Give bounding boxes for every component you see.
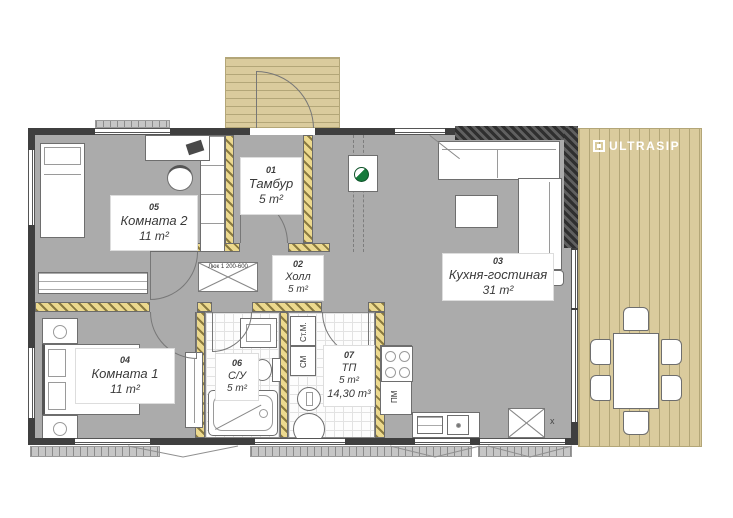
window — [28, 348, 35, 418]
window-opening-triangle — [128, 446, 238, 458]
beam-dashed-line — [353, 135, 354, 252]
room-name: С/У — [228, 370, 246, 384]
room-label-02: 02 Холл 5 m² — [272, 255, 324, 301]
ceiling-hatch: Люк 1 200-600 — [198, 262, 258, 292]
room-area: 11 m² — [139, 229, 169, 244]
room-number: 01 — [266, 165, 276, 176]
bathtub-drain — [259, 409, 268, 418]
deck-top — [225, 57, 340, 128]
window — [75, 438, 150, 445]
single-bed — [40, 143, 85, 238]
nightstand — [42, 318, 78, 344]
dining-chair — [661, 375, 682, 401]
wardrobe — [185, 352, 203, 428]
room-area: 5 m² — [259, 192, 283, 207]
room-label-05: 05 Комната 2 11 m² — [110, 195, 198, 251]
room-name: Кухня-гостиная — [449, 267, 547, 283]
coffee-table — [455, 195, 498, 228]
wardrobe-handle — [194, 359, 195, 423]
ultrasip-logo-text: ULTRASIP — [609, 139, 680, 153]
x-mark: x — [550, 416, 555, 426]
pillow — [48, 349, 66, 377]
dresser — [38, 272, 148, 294]
wall — [225, 135, 234, 251]
wall — [252, 302, 322, 312]
ultrasip-logo-icon — [593, 140, 605, 152]
kitchen-sink-unit — [417, 415, 475, 436]
room-volume: 14,30 m³ — [327, 388, 370, 402]
tap — [456, 423, 461, 428]
room-label-04: 04 Комната 1 11 m² — [75, 348, 175, 404]
dining-chair — [623, 411, 649, 435]
room-number: 06 — [232, 358, 242, 369]
nightstand — [42, 415, 78, 441]
wall — [288, 243, 330, 252]
dining-chair — [623, 307, 649, 331]
room-name: Тамбур — [249, 176, 294, 192]
room-number: 07 — [344, 350, 354, 361]
window — [395, 128, 445, 135]
pillow — [48, 382, 66, 410]
floor-plan-canvas: ULTRASIP — [0, 0, 733, 518]
sink-basin — [246, 324, 271, 342]
lamp — [53, 422, 67, 436]
dining-chair — [590, 339, 611, 365]
dryer-machine-label: СМ — [299, 351, 308, 373]
stove — [381, 346, 413, 382]
window — [415, 438, 470, 445]
room-area: 5 m² — [339, 375, 359, 388]
door-arc-room2 — [150, 252, 198, 300]
entry-door-arc — [256, 71, 314, 129]
washing-machine: Ст.М. — [290, 316, 316, 346]
room-label-06: 06 С/У 5 m² — [215, 353, 259, 401]
beam-dashed-line — [363, 135, 364, 252]
burner — [385, 351, 396, 362]
window — [95, 128, 170, 135]
toilet-tank — [272, 358, 281, 382]
room-name: ТП — [342, 362, 357, 376]
room-label-03: 03 Кухня-гостиная 31 m² — [442, 253, 554, 301]
sofa-seat-divider — [497, 150, 498, 178]
dining-chair — [661, 339, 682, 365]
lamp — [53, 325, 67, 339]
laptop — [186, 140, 205, 155]
room-name: Комната 1 — [92, 366, 159, 382]
electrical-panel — [348, 155, 378, 192]
exterior-wall-hatched — [564, 128, 578, 248]
dryer-machine: СМ — [290, 346, 316, 376]
blanket-line — [44, 174, 81, 175]
dishwasher-label: ПМ — [390, 386, 399, 408]
dining-chair — [590, 375, 611, 401]
building-outline: Ст.М. СМ ПМ — [28, 128, 578, 445]
wall — [35, 302, 150, 312]
dining-table — [613, 333, 659, 409]
sliding-door-opening — [571, 310, 578, 422]
desk — [145, 135, 210, 161]
window-opening-triangle — [488, 446, 572, 458]
wall — [368, 302, 385, 312]
room-number: 05 — [149, 202, 159, 213]
window — [28, 150, 35, 225]
room-area: 31 m² — [483, 283, 514, 298]
sofa-horizontal — [438, 141, 560, 180]
room-number: 02 — [293, 259, 303, 270]
room-name: Холл — [285, 271, 310, 285]
drainer — [417, 416, 443, 434]
window — [255, 438, 345, 445]
window — [480, 438, 565, 445]
window — [571, 250, 578, 308]
room-area: 11 m² — [110, 382, 140, 397]
room-label-01: 01 Тамбур 5 m² — [240, 157, 302, 215]
pillow — [44, 147, 81, 165]
wall — [303, 135, 313, 243]
burner — [399, 367, 410, 378]
ultrasip-logo: ULTRASIP — [593, 139, 680, 153]
room-number: 04 — [120, 355, 130, 366]
room-name: Комната 2 — [121, 213, 188, 229]
vent-box — [508, 408, 545, 438]
wall — [197, 302, 212, 312]
office-chair — [167, 165, 193, 191]
panel-indicator-icon — [354, 167, 369, 182]
burner — [385, 367, 396, 378]
pump-core — [306, 392, 313, 406]
sofa-backrest-line — [442, 149, 556, 150]
washing-machine-label: Ст.М. — [299, 319, 308, 345]
room-label-07: 07 ТП 5 m² 14,30 m³ — [323, 345, 375, 407]
wall — [280, 312, 288, 438]
sink-basin — [447, 415, 469, 435]
boiler-pump — [297, 387, 321, 411]
room-number: 03 — [493, 256, 503, 267]
room-area: 5 m² — [288, 284, 308, 297]
ceiling-hatch-label: Люк 1 200-600 — [208, 264, 248, 270]
room-area: 5 m² — [227, 383, 247, 396]
exterior-wall-hatched — [455, 126, 578, 140]
entry-door-opening — [250, 128, 315, 135]
window-opening-triangle — [390, 446, 480, 458]
deck-right: ULTRASIP — [578, 128, 702, 447]
burner — [399, 351, 410, 362]
window-sill — [95, 120, 170, 128]
